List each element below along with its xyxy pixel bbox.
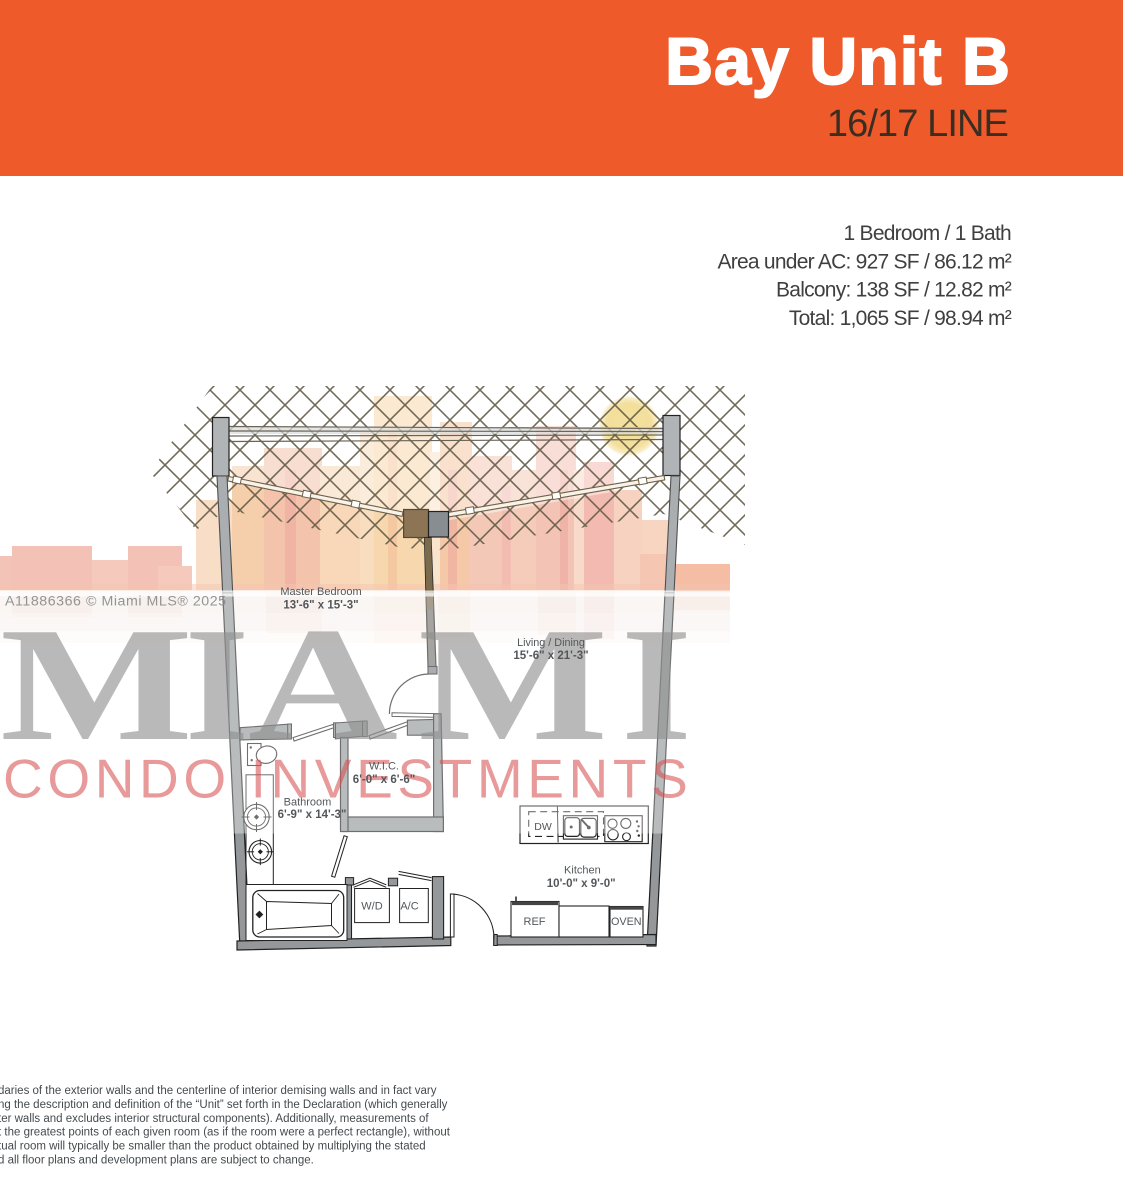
svg-text:A11886366 © Miami MLS® 2025: A11886366 © Miami MLS® 2025: [5, 594, 227, 610]
svg-text:15'-6" x 21'-3": 15'-6" x 21'-3": [513, 650, 588, 662]
svg-text:6'-0" x 6'-6": 6'-0" x 6'-6": [353, 774, 415, 786]
svg-text:Kitchen: Kitchen: [564, 865, 601, 877]
svg-text:W/D: W/D: [361, 901, 382, 913]
svg-text:Balcony: 138 SF / 12.82 m²: Balcony: 138 SF / 12.82 m²: [776, 279, 1012, 302]
svg-text:CONDO INVESTMENTS: CONDO INVESTMENTS: [3, 748, 692, 810]
svg-text:13'-6" x 15'-3": 13'-6" x 15'-3": [283, 600, 358, 612]
svg-text:ter walls and excludes interio: ter walls and excludes interior structur…: [0, 1113, 429, 1125]
svg-text:Master Bedroom: Master Bedroom: [280, 586, 361, 598]
svg-text:Living / Dining: Living / Dining: [517, 637, 585, 649]
svg-text:REF: REF: [524, 916, 546, 928]
svg-text:6'-9" x 14'-3": 6'-9" x 14'-3": [278, 809, 347, 821]
svg-text:t the greatest points of each: t the greatest points of each given room…: [0, 1127, 451, 1139]
svg-text:tual room will typically be sm: tual room will typically be smaller than…: [0, 1141, 426, 1153]
svg-text:OVEN: OVEN: [611, 916, 642, 928]
svg-text:W.I.C.: W.I.C.: [369, 761, 399, 773]
svg-text:16/17 LINE: 16/17 LINE: [827, 103, 1008, 145]
svg-text:d all floor plans and developm: d all floor plans and development plans …: [0, 1155, 314, 1167]
svg-text:1 Bedroom / 1 Bath: 1 Bedroom / 1 Bath: [844, 222, 1012, 245]
svg-text:Area under AC: 927 SF / 86.12: Area under AC: 927 SF / 86.12 m²: [717, 250, 1011, 273]
svg-text:10'-0" x 9'-0": 10'-0" x 9'-0": [547, 878, 616, 890]
svg-text:Bathroom: Bathroom: [284, 797, 332, 809]
svg-text:ng the description and definit: ng the description and definition of the…: [0, 1099, 448, 1111]
svg-text:Total: 1,065 SF / 98.94 m²: Total: 1,065 SF / 98.94 m²: [789, 307, 1012, 330]
svg-text:Bay Unit B: Bay Unit B: [665, 24, 1011, 98]
svg-text:daries of the exterior walls a: daries of the exterior walls and the cen…: [0, 1085, 437, 1097]
svg-text:A/C: A/C: [400, 901, 418, 913]
svg-text:DW: DW: [534, 821, 552, 833]
